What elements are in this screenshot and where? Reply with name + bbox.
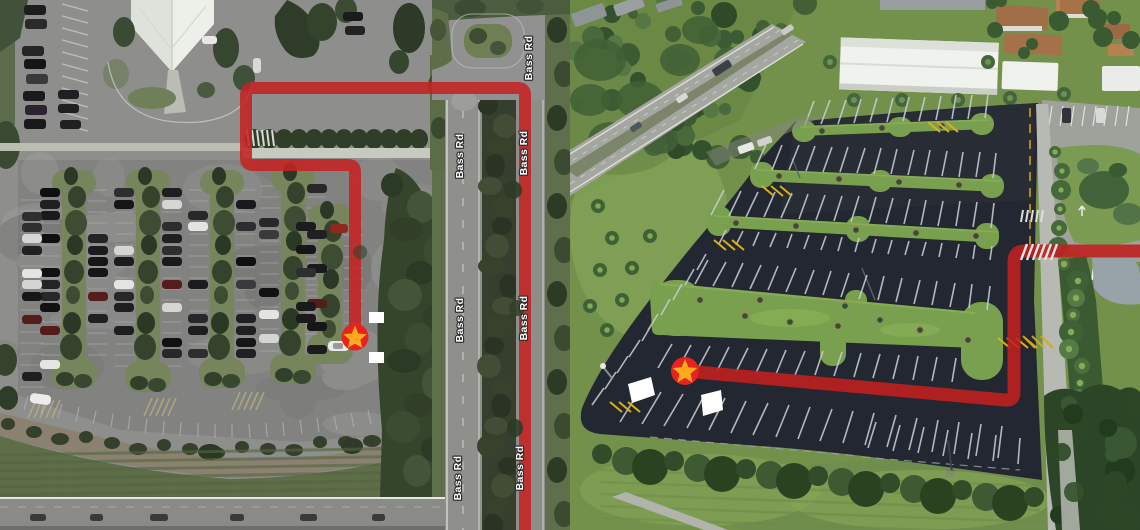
svg-text:Bass Rd: Bass Rd	[454, 298, 466, 343]
svg-text:Bass Rd: Bass Rd	[452, 456, 464, 501]
svg-text:Bass Rd: Bass Rd	[518, 296, 530, 341]
svg-text:Bass Rd: Bass Rd	[518, 131, 530, 176]
svg-text:Bass Rd: Bass Rd	[454, 134, 466, 179]
svg-text:Bass Rd: Bass Rd	[514, 446, 526, 491]
svg-text:Bass Rd: Bass Rd	[523, 36, 535, 81]
